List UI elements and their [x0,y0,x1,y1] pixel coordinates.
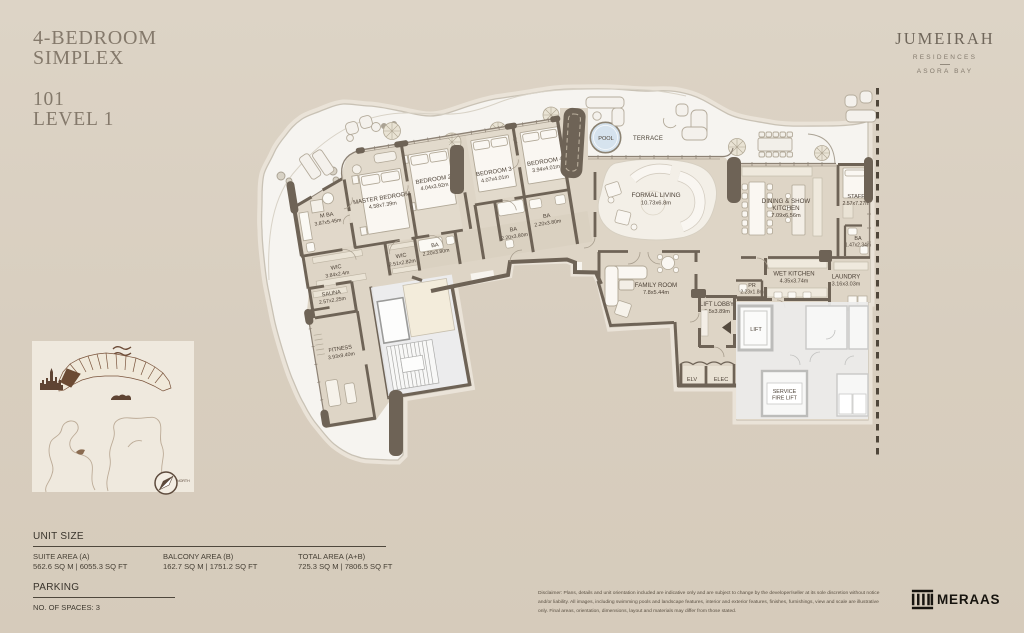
svg-text:2.23x1.8m: 2.23x1.8m [740,290,763,296]
svg-text:BA: BA [509,226,518,233]
svg-text:10.73x6.8m: 10.73x6.8m [641,201,671,207]
svg-text:WET KITCHEN: WET KITCHEN [773,272,814,278]
svg-text:LAUNDRY: LAUNDRY [832,275,861,281]
svg-text:PR: PR [748,283,756,289]
svg-text:2.57x7.27m: 2.57x7.27m [842,201,869,207]
svg-text:KITCHEN: KITCHEN [772,205,799,212]
svg-text:4.35x3.74m: 4.35x3.74m [780,279,809,285]
svg-text:POOL: POOL [598,136,614,142]
svg-text:BA: BA [854,236,862,242]
svg-text:BA: BA [431,242,440,249]
svg-text:BA: BA [543,213,552,220]
svg-text:SERVICE: SERVICE [773,389,797,395]
svg-text:FAMILY ROOM: FAMILY ROOM [635,282,677,289]
svg-text:ELV: ELV [687,377,697,383]
svg-text:FORMAL LIVING: FORMAL LIVING [631,192,680,199]
svg-text:LIFT: LIFT [750,327,762,333]
svg-text:LIFT LOBBY: LIFT LOBBY [700,302,734,308]
svg-text:7.09x6.56m: 7.09x6.56m [771,213,801,219]
svg-text:7.8x5.44m: 7.8x5.44m [643,290,669,296]
svg-text:DINING & SHOW: DINING & SHOW [762,198,811,205]
svg-text:3.16x3.03m: 3.16x3.03m [832,282,861,288]
svg-text:1.47x2.34m: 1.47x2.34m [845,243,871,249]
svg-text:TERRACE: TERRACE [633,136,663,142]
svg-text:STAFF: STAFF [847,194,865,200]
svg-text:FIRE LIFT: FIRE LIFT [772,396,798,402]
svg-text:NORTH: NORTH [177,479,190,483]
svg-text:ELEC: ELEC [714,377,729,383]
